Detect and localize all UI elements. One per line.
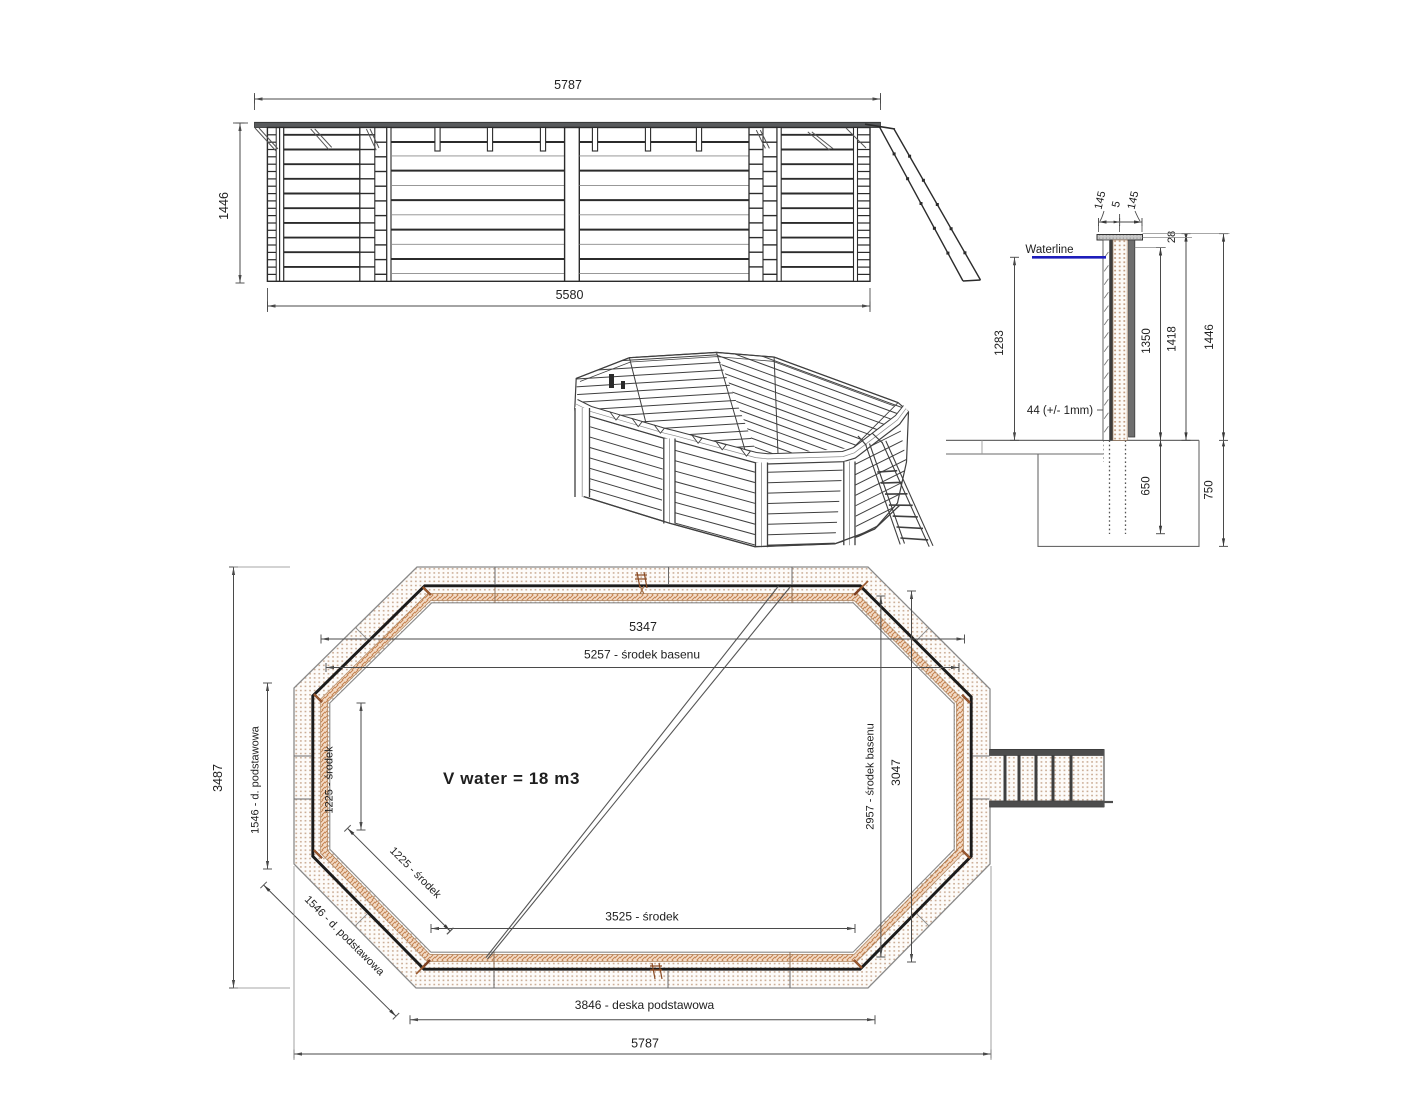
svg-text:Waterline: Waterline (1025, 244, 1073, 256)
svg-text:5257 - środek basenu: 5257 - środek basenu (584, 648, 700, 662)
svg-text:1546 - d. podstawowa: 1546 - d. podstawowa (250, 725, 262, 834)
svg-text:1225 - środek: 1225 - środek (324, 746, 336, 814)
svg-text:1283: 1283 (994, 330, 1006, 356)
svg-text:2957 - środek basenu: 2957 - środek basenu (865, 723, 877, 829)
svg-text:5787: 5787 (554, 78, 582, 92)
svg-text:44 (+/- 1mm): 44 (+/- 1mm) (1027, 405, 1093, 417)
svg-text:1418: 1418 (1167, 326, 1179, 352)
svg-text:3846 - deska podstawowa: 3846 - deska podstawowa (575, 998, 715, 1012)
svg-text:5580: 5580 (556, 288, 584, 302)
svg-text:V water = 18 m3: V water = 18 m3 (443, 769, 580, 788)
svg-text:750: 750 (1204, 480, 1216, 499)
svg-text:5787: 5787 (631, 1037, 659, 1051)
svg-text:650: 650 (1141, 476, 1153, 495)
svg-text:3047: 3047 (889, 759, 903, 786)
svg-text:3487: 3487 (211, 764, 225, 792)
svg-text:3525 - środek: 3525 - środek (605, 910, 679, 924)
svg-text:1350: 1350 (1141, 328, 1153, 354)
svg-text:5347: 5347 (629, 620, 657, 634)
svg-text:28: 28 (1166, 231, 1178, 243)
svg-text:1446: 1446 (217, 192, 231, 220)
svg-text:1446: 1446 (1204, 324, 1216, 350)
